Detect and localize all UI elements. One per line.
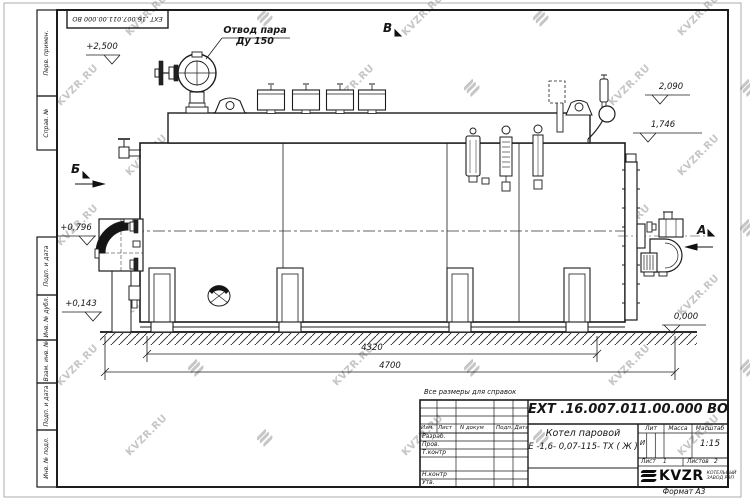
tb-row-nkontr: Н.контр (422, 472, 447, 478)
tb-header-masshtab: Масштаб (692, 426, 728, 432)
probe (557, 100, 563, 132)
tb-header-data: Дата (515, 426, 529, 432)
tb-row-tkontr: Т.контр (422, 450, 446, 456)
phantom-unit (549, 81, 565, 103)
steam-drum (168, 113, 590, 143)
elevation-0796: +0,796 (56, 224, 96, 233)
reference-note: Все размеры для справок (424, 389, 516, 396)
margin-label-perv-primen: Перв. примен. (44, 30, 50, 75)
logo-spring-icon (641, 468, 656, 484)
elevation-2090: 2,090 (652, 83, 690, 92)
product-title-line1: Котел паровой (530, 429, 636, 439)
margin-label-podp-data-2: Подп. и дата (44, 386, 50, 427)
steam-outlet-valve (155, 52, 216, 113)
product-title-line2: Е -1,6- 0,07-115- ТХ ( Ж ) (528, 443, 638, 452)
margin-label-vzam-inv: Взам. инв. № (44, 341, 50, 382)
handwheel (159, 61, 163, 85)
elevation-0143: +0,143 (60, 300, 102, 309)
tb-header-massa: Масса (664, 426, 692, 432)
elevation-0000: 0,000 (668, 313, 704, 322)
drum-hatches (258, 84, 386, 114)
dimension-4700: 4700 (360, 362, 420, 371)
tb-header-izm: Изм (421, 426, 432, 432)
margin-label-sprav: Справ. № (44, 108, 50, 137)
front-smokebox (95, 219, 143, 332)
company-logo: KVZR КОТЕЛЬНЫЙ ЗАВОД РЭП (641, 466, 736, 486)
margin-label-inv-podl: Инв. № подл. (44, 437, 50, 478)
steam-outlet-dn: Ду 150 (214, 37, 296, 47)
top-left-stamp-text: ЕХТ .16.007.011.00.000 ВО (67, 10, 168, 28)
drain-valve (119, 147, 129, 158)
manhole (208, 285, 230, 306)
tb-row-razrab: Разраб. (422, 434, 446, 440)
tb-sheet-value: 1 (663, 459, 667, 465)
tb-sheet-label: Лист (641, 459, 656, 465)
elevation-2500: +2,500 (84, 43, 120, 52)
tb-lit-value: И (638, 440, 647, 447)
logo-name: KVZR (659, 468, 704, 484)
view-label-a: А (697, 224, 706, 237)
gauge-glass (500, 137, 512, 176)
tb-header-podp: Подп. (496, 426, 513, 432)
margin-label-inv-dubl: Инв. № дубл. (44, 296, 50, 337)
tb-sheets-value: 2 (714, 459, 718, 465)
view-label-b: Б (71, 163, 80, 176)
tb-header-ndokum: N докум (460, 426, 484, 432)
dimension-4320: 4320 (342, 344, 402, 353)
view-label-v: В (383, 22, 392, 35)
manometer (588, 75, 615, 143)
tb-header-list: Лист (438, 426, 452, 432)
boiler-shell (132, 113, 633, 327)
burner-motor (641, 253, 657, 272)
elevation-1746: 1,746 (644, 121, 682, 130)
tb-row-prov: Пров. (422, 442, 439, 448)
steam-outlet-label: Отвод пара (214, 26, 296, 36)
doc-number: ЕХТ .16.007.011.00.000 ВО (528, 403, 728, 417)
tb-scale-value: 1:15 (692, 440, 728, 449)
drawing-sheet: KVZR.RUKVZR.RUKVZR.RUKVZR.RUKVZR.RUKVZR.… (0, 0, 750, 500)
tb-row-utv: Утв. (422, 480, 435, 486)
margin-label-podp-data-1: Подп. и дата (44, 246, 50, 287)
tb-header-lit: Лит (638, 426, 664, 432)
logo-subtitle: КОТЕЛЬНЫЙ ЗАВОД РЭП (707, 471, 737, 482)
format-label: Формат А3 (640, 488, 728, 496)
tb-sheets-label: Листов (687, 459, 709, 465)
